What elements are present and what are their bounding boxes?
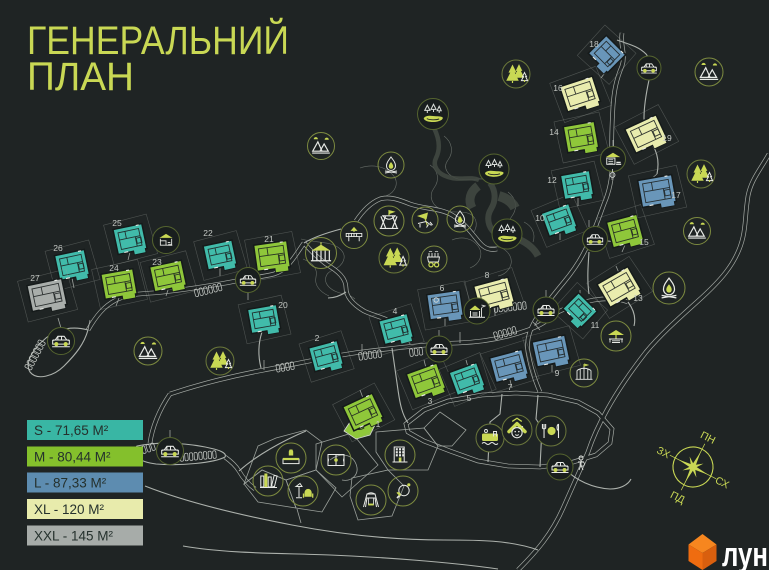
svg-text:15: 15 [639,237,649,247]
svg-text:XXL - 145 М²: XXL - 145 М² [34,529,114,544]
svg-text:лун: лун [722,536,768,570]
svg-text:22: 22 [203,228,213,238]
svg-text:21: 21 [264,234,274,244]
svg-text:23: 23 [152,257,162,267]
svg-text:3: 3 [428,396,433,406]
svg-text:M - 80,44 М²: M - 80,44 М² [34,450,111,465]
svg-text:L - 87,33 М²: L - 87,33 М² [34,476,107,491]
svg-text:9: 9 [555,368,560,378]
svg-text:7: 7 [508,382,513,392]
svg-text:26: 26 [53,243,63,253]
svg-text:13: 13 [633,293,643,303]
svg-text:1: 1 [376,419,381,429]
svg-text:20: 20 [278,300,288,310]
svg-text:10: 10 [535,213,545,223]
svg-text:17: 17 [671,190,681,200]
svg-text:14: 14 [549,127,559,137]
svg-text:12: 12 [547,175,557,185]
svg-text:S - 71,65 М²: S - 71,65 М² [34,423,109,438]
svg-text:XL - 120 М²: XL - 120 М² [34,502,105,517]
svg-text:18: 18 [589,39,599,49]
svg-text:8: 8 [485,270,490,280]
svg-text:16: 16 [553,83,563,93]
svg-text:4: 4 [393,306,398,316]
svg-text:2: 2 [315,333,320,343]
svg-text:11: 11 [591,320,600,330]
svg-text:19: 19 [662,133,672,143]
svg-text:ПЛАН: ПЛАН [27,55,134,99]
svg-text:25: 25 [112,218,122,228]
svg-text:6: 6 [440,283,445,293]
svg-text:5: 5 [467,393,472,403]
svg-text:27: 27 [30,273,40,283]
